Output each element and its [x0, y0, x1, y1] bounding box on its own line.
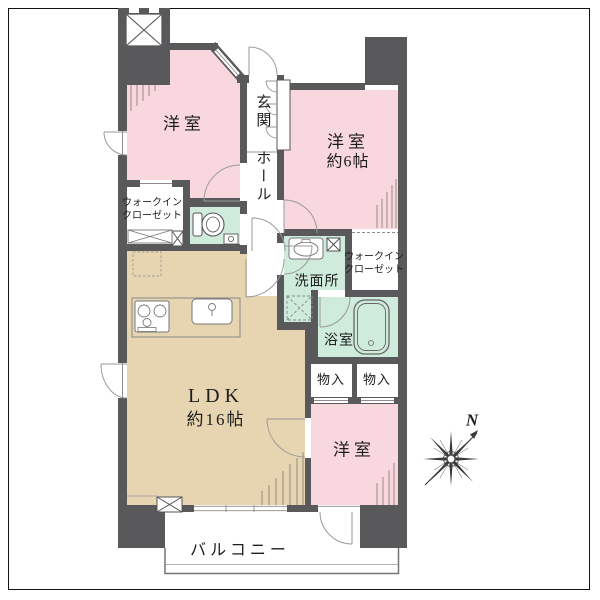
kitchen-stove-icon	[135, 301, 169, 332]
label-walk-in-closet-left: ウォークイン クローゼット	[122, 198, 182, 223]
kitchen-sink-icon	[192, 299, 232, 324]
label-walk-in-closet-right: ウォークイン クローゼット	[344, 252, 404, 277]
floor-plan-drawing	[0, 0, 600, 600]
compass-icon	[423, 430, 479, 486]
label-washroom: 洗面所	[295, 273, 340, 291]
label-bathroom: 浴室	[324, 332, 354, 350]
label-ldk: LDK 約16帖	[187, 384, 246, 430]
label-balcony: バルコニー	[190, 541, 290, 561]
label-hallway: ホール	[253, 150, 272, 204]
label-bedroom-bottom: 洋室	[333, 439, 375, 460]
elevator-x-icon	[126, 14, 162, 46]
label-bedroom-top-left: 洋室	[163, 113, 205, 134]
label-compass-north: N	[466, 409, 478, 430]
floor-plan: 洋室 洋室 約6帖 玄関 ホール ウォークイン クローゼット 洗面所 ウォークイ…	[0, 0, 600, 600]
room-ldk	[127, 251, 247, 505]
closet-shelf-icon	[128, 230, 172, 243]
label-storage-left: 物入	[317, 372, 345, 388]
label-bedroom-top-right: 洋室 約6帖	[326, 131, 369, 172]
label-entrance: 玄関	[253, 94, 272, 130]
washbasin-icon	[289, 238, 323, 259]
label-storage-right: 物入	[363, 372, 391, 388]
